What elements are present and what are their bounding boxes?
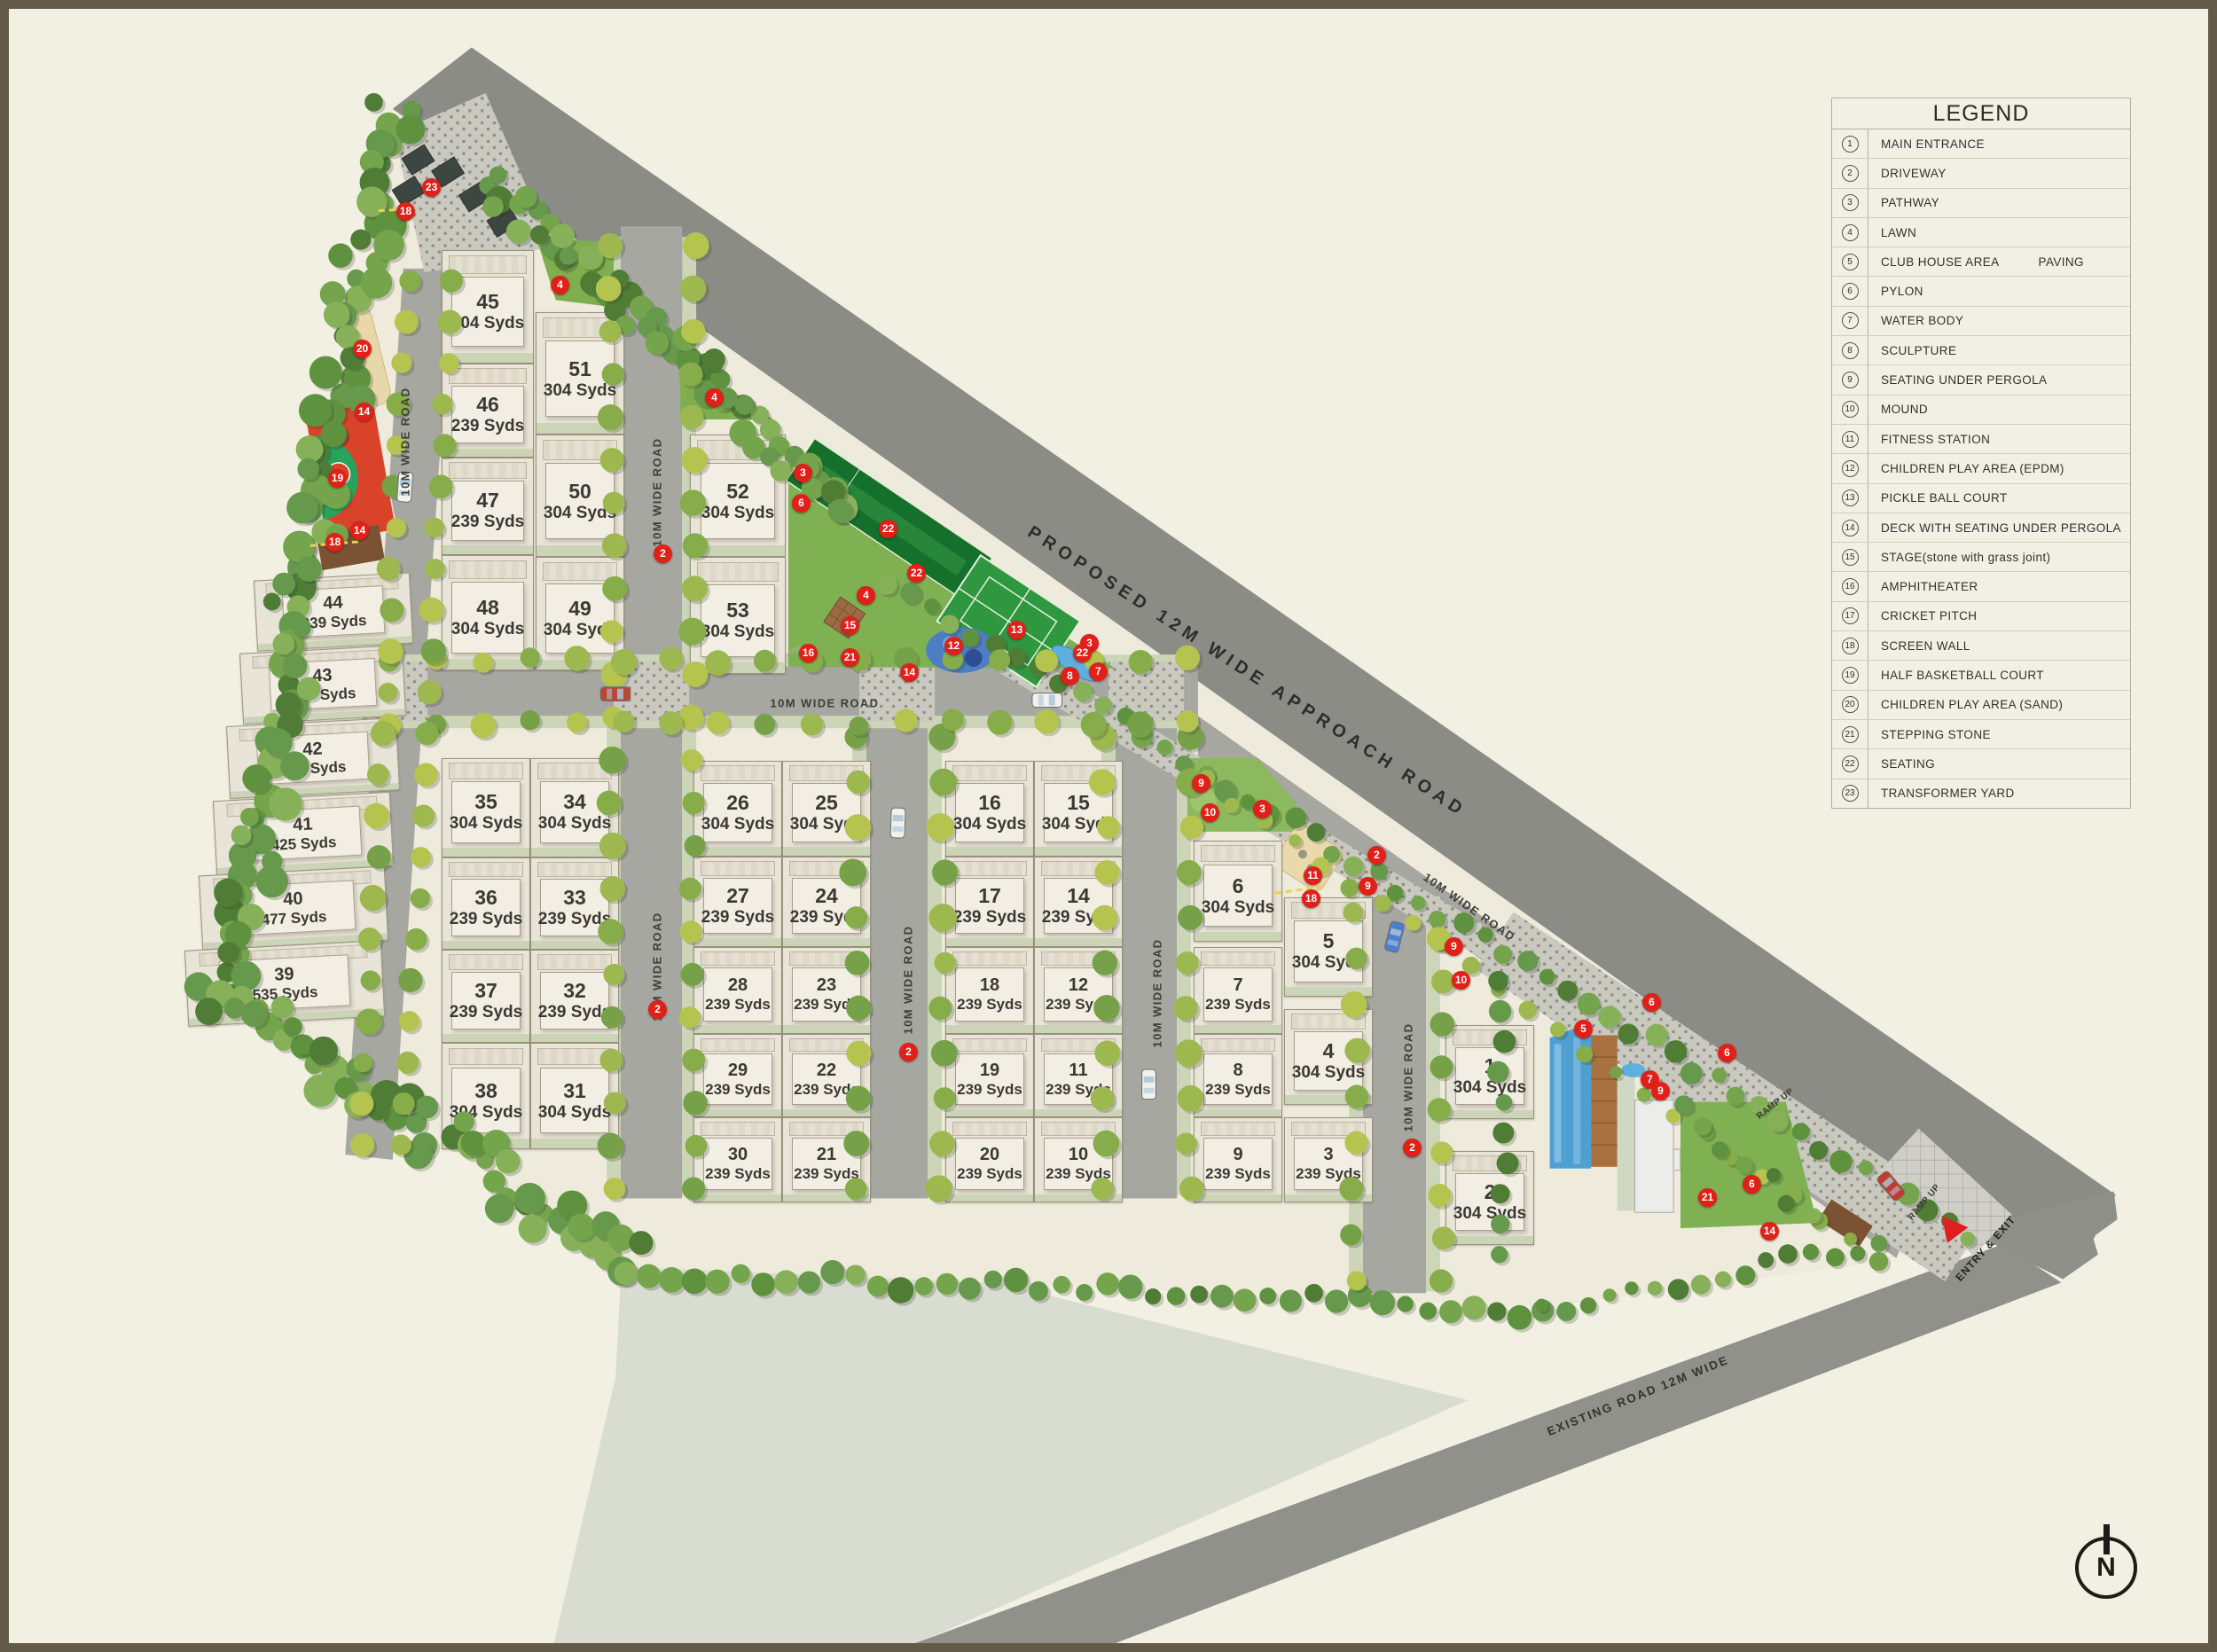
overlay-layer: PROPOSED 12M WIDE APPROACH ROAD EXISTING… [9,9,2208,1643]
legend-number-cell: 13 [1832,484,1868,513]
amenity-marker-18: 18 [325,533,344,552]
amenity-marker-4: 4 [705,388,724,407]
internal-road-label: 10M WIDE ROAD [902,926,915,1035]
amenity-marker-11: 11 [1304,866,1322,885]
amenity-marker-14: 14 [900,663,919,682]
legend-number: 8 [1842,342,1859,359]
legend-label: DRIVEWAY [1868,167,1947,180]
legend-item-22: 22SEATING [1832,749,2130,779]
compass-n-label: N [2079,1553,2134,1583]
legend-item-15: 15STAGE(stone with grass joint) [1832,543,2130,572]
legend-label: CLUB HOUSE AREA [1868,255,2000,269]
amenity-marker-8: 8 [1061,667,1079,685]
legend-item-9: 9SEATING UNDER PERGOLA [1832,365,2130,395]
legend-body: 1MAIN ENTRANCE2DRIVEWAY3PATHWAY4LAWN5CLU… [1832,129,2130,808]
legend-label: CHILDREN PLAY AREA (SAND) [1868,698,2063,711]
legend-number-cell: 3 [1832,189,1868,217]
legend-label: SCULPTURE [1868,344,1956,357]
legend-item-14: 14DECK WITH SEATING UNDER PERGOLA [1832,513,2130,543]
legend-item-4: 4LAWN [1832,218,2130,247]
legend-label: STAGE(stone with grass joint) [1868,551,2050,564]
legend-number: 10 [1842,401,1859,418]
legend-item-19: 19HALF BASKETBALL COURT [1832,661,2130,690]
amenity-marker-14: 14 [355,403,373,421]
legend-number: 6 [1842,283,1859,300]
amenity-marker-3: 3 [794,464,812,482]
legend-item-8: 8SCULPTURE [1832,336,2130,365]
legend-number-cell: 17 [1832,602,1868,630]
amenity-marker-9: 9 [1651,1082,1670,1100]
legend-number-cell: 14 [1832,513,1868,542]
legend-number: 17 [1842,607,1859,624]
amenity-marker-22: 22 [879,520,897,538]
amenity-marker-19: 19 [328,469,347,488]
legend-item-6: 6PYLON [1832,277,2130,306]
amenity-marker-13: 13 [1007,621,1026,639]
amenity-marker-15: 15 [841,616,859,635]
legend-item-23: 23TRANSFORMER YARD [1832,779,2130,808]
amenity-marker-12: 12 [944,637,963,655]
ramp-up-label: RAMP UP [1907,1183,1942,1223]
amenity-marker-18: 18 [1302,889,1320,908]
amenity-marker-9: 9 [1445,937,1463,956]
amenity-marker-3: 3 [1253,800,1272,818]
compass-tick [2103,1524,2110,1554]
legend-label: STEPPING STONE [1868,728,1991,741]
amenity-marker-2: 2 [648,1000,667,1019]
legend-item-18: 18SCREEN WALL [1832,631,2130,661]
amenity-marker-14: 14 [1760,1222,1779,1241]
legend-item-1: 1MAIN ENTRANCE [1832,129,2130,159]
amenity-marker-18: 18 [396,202,415,221]
legend-label: LAWN [1868,226,1916,239]
legend-number: 22 [1842,756,1859,772]
legend-label: AMPHITHEATER [1868,580,1978,593]
legend-label: DECK WITH SEATING UNDER PERGOLA [1868,521,2121,535]
legend-item-20: 20CHILDREN PLAY AREA (SAND) [1832,691,2130,720]
legend-number-cell: 7 [1832,307,1868,335]
legend-label: PICKLE BALL COURT [1868,491,2008,505]
amenity-marker-6: 6 [792,494,811,513]
legend-number: 15 [1842,549,1859,566]
legend-label: PYLON [1868,285,1923,298]
internal-road-label: 10M WIDE ROAD [771,697,880,710]
amenity-marker-10: 10 [1452,971,1470,990]
legend-number-cell: 8 [1832,336,1868,364]
legend-number: 4 [1842,224,1859,241]
legend-number: 16 [1842,578,1859,595]
legend-item-5: 5CLUB HOUSE AREAPAVING [1832,247,2130,277]
legend-number-cell: 4 [1832,218,1868,247]
legend-number: 2 [1842,165,1859,182]
legend-number: 19 [1842,667,1859,684]
legend-number-cell: 21 [1832,720,1868,748]
legend-label: CHILDREN PLAY AREA (EPDM) [1868,462,2064,475]
amenity-marker-9: 9 [1192,774,1210,793]
legend-item-11: 11FITNESS STATION [1832,425,2130,454]
ramp-up-label: RAMP UP [1755,1086,1796,1121]
legend-label: HALF BASKETBALL COURT [1868,669,2044,682]
internal-road-label: 10M WIDE ROAD [1421,871,1517,944]
legend-item-17: 17CRICKET PITCH [1832,602,2130,631]
legend-label: FITNESS STATION [1868,433,1990,446]
legend-item-13: 13PICKLE BALL COURT [1832,484,2130,513]
amenity-marker-2: 2 [899,1043,918,1061]
legend-label: TRANSFORMER YARD [1868,787,2015,800]
amenity-marker-9: 9 [1359,877,1377,896]
site-plan: 45304 Syds46239 Syds47239 Syds48304 Syds… [0,0,2217,1652]
legend-number-cell: 2 [1832,159,1868,187]
amenity-marker-7: 7 [1089,662,1108,681]
amenity-marker-4: 4 [551,276,569,294]
entry-exit-label: ENTRY & EXIT [1953,1213,2017,1283]
legend-number: 1 [1842,136,1859,153]
legend-number: 11 [1842,431,1859,448]
legend-number-cell: 9 [1832,365,1868,394]
amenity-marker-6: 6 [1642,993,1661,1012]
legend-number: 5 [1842,254,1859,270]
amenity-marker-6: 6 [1718,1044,1736,1062]
legend-number: 18 [1842,638,1859,654]
amenity-marker-2: 2 [654,544,672,563]
amenity-marker-2: 2 [1367,846,1386,865]
legend-number: 20 [1842,696,1859,713]
legend-number-cell: 12 [1832,454,1868,482]
north-compass: N [2075,1537,2137,1599]
legend-number: 9 [1842,372,1859,388]
legend-number-cell: 15 [1832,543,1868,571]
legend-panel: LEGEND 1MAIN ENTRANCE2DRIVEWAY3PATHWAY4L… [1831,98,2131,809]
legend-item-3: 3PATHWAY [1832,189,2130,218]
legend-item-12: 12CHILDREN PLAY AREA (EPDM) [1832,454,2130,483]
legend-number-cell: 18 [1832,631,1868,660]
legend-number: 13 [1842,489,1859,506]
legend-label: SCREEN WALL [1868,639,1970,653]
legend-number-cell: 23 [1832,779,1868,808]
amenity-marker-5: 5 [1574,1020,1593,1038]
legend-number: 3 [1842,194,1859,211]
legend-label: SEATING [1868,757,1935,771]
legend-label: MOUND [1868,403,1928,416]
legend-number-cell: 20 [1832,691,1868,719]
legend-number-cell: 22 [1832,749,1868,778]
legend-item-10: 10MOUND [1832,395,2130,425]
legend-number: 21 [1842,726,1859,743]
legend-item-2: 2DRIVEWAY [1832,159,2130,188]
legend-number-cell: 10 [1832,395,1868,424]
amenity-marker-23: 23 [422,178,441,197]
legend-number-cell: 5 [1832,247,1868,276]
amenity-marker-16: 16 [799,644,818,662]
amenity-marker-20: 20 [353,340,372,358]
legend-number-cell: 19 [1832,661,1868,689]
legend-title: LEGEND [1832,98,2130,129]
legend-item-21: 21STEPPING STONE [1832,720,2130,749]
legend-item-7: 7WATER BODY [1832,307,2130,336]
legend-number: 14 [1842,520,1859,536]
legend-label: SEATING UNDER PERGOLA [1868,373,2047,387]
amenity-marker-22: 22 [1073,644,1092,662]
legend-item-16: 16AMPHITHEATER [1832,572,2130,601]
legend-number-cell: 1 [1832,129,1868,158]
existing-road-label: EXISTING ROAD 12M WIDE [1545,1353,1730,1438]
amenity-marker-21: 21 [841,648,859,667]
legend-number-cell: 11 [1832,425,1868,453]
legend-number: 23 [1842,785,1859,802]
legend-label: MAIN ENTRANCE [1868,137,1985,151]
amenity-marker-2: 2 [1403,1139,1422,1157]
internal-road-label: 10M WIDE ROAD [1151,939,1164,1048]
legend-number: 12 [1842,460,1859,477]
legend-number-cell: 6 [1832,277,1868,305]
amenity-marker-10: 10 [1201,803,1219,822]
amenity-marker-6: 6 [1743,1175,1761,1194]
legend-number-cell: 16 [1832,572,1868,600]
legend-label: WATER BODY [1868,314,1963,327]
amenity-marker-21: 21 [1698,1188,1717,1207]
internal-road-label: 10M WIDE ROAD [399,388,412,497]
amenity-marker-22: 22 [907,564,926,583]
legend-label: PATHWAY [1868,196,1939,209]
amenity-marker-4: 4 [857,586,875,605]
legend-label-secondary: PAVING [2039,255,2084,269]
legend-label: CRICKET PITCH [1868,609,1977,622]
amenity-marker-14: 14 [350,521,369,540]
internal-road-label: 10M WIDE ROAD [1402,1023,1415,1132]
internal-road-label: 10M WIDE ROAD [651,438,664,547]
legend-number: 7 [1842,312,1859,329]
